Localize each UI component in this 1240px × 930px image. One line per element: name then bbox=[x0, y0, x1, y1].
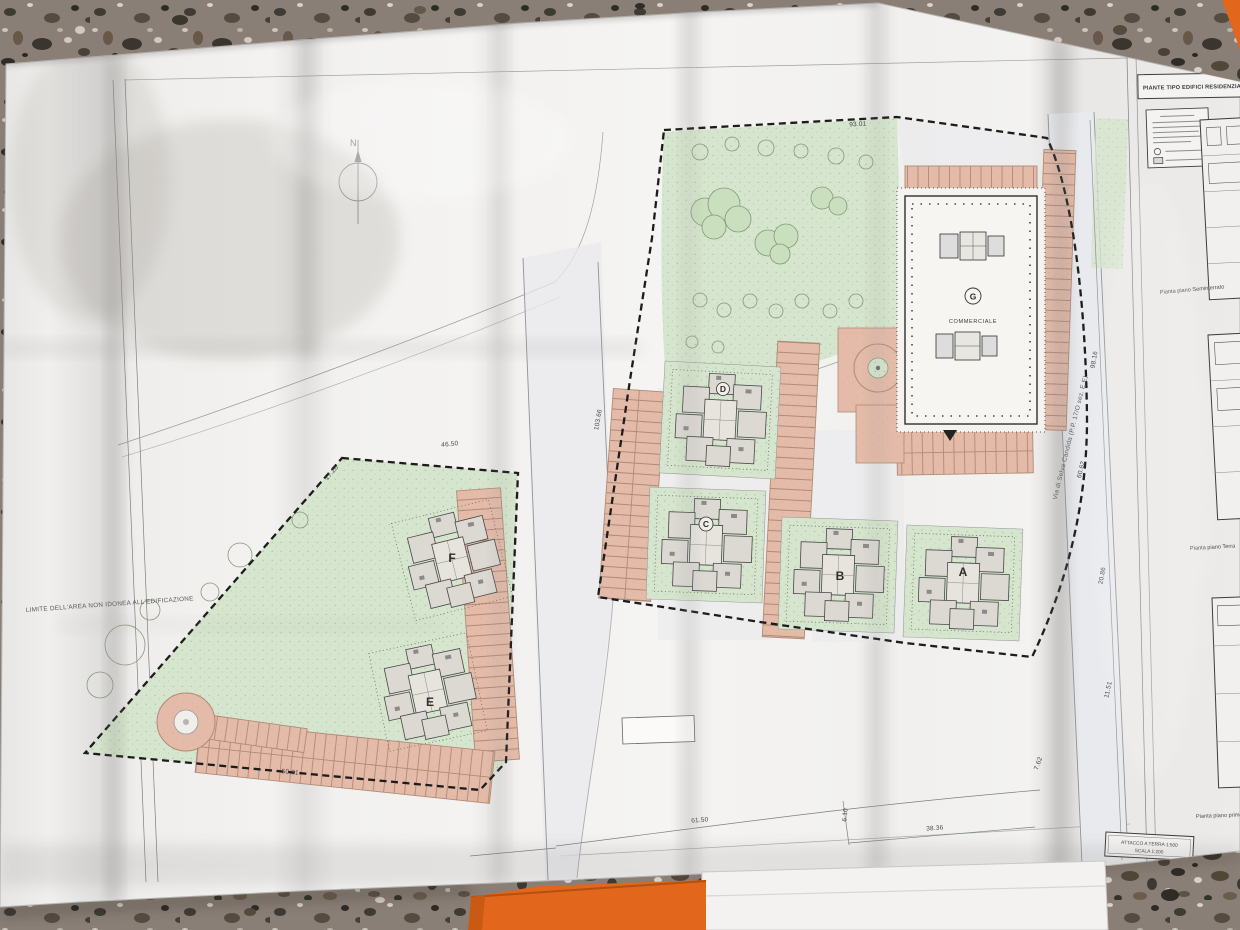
building-d-label: D bbox=[720, 384, 726, 394]
commercial-core-north bbox=[940, 232, 1004, 260]
building-c-label: C bbox=[703, 519, 709, 529]
building-f-label: F bbox=[448, 551, 455, 565]
building-b-label: B bbox=[836, 569, 845, 583]
building-g-label: G bbox=[970, 292, 977, 302]
commercial-building: G COMMERCIALE bbox=[897, 188, 1045, 441]
commercial-label: COMMERCIALE bbox=[949, 319, 997, 325]
building-a: A bbox=[903, 525, 1023, 641]
dim-bottom-right: 38.36 bbox=[926, 824, 944, 832]
commercial-core-south bbox=[936, 332, 997, 360]
photo-of-site-plan: F E 46.50 17.26 50.31 bbox=[0, 0, 1240, 930]
building-a-label: A bbox=[959, 565, 968, 579]
building-c: C bbox=[646, 487, 766, 603]
legend-symbol-square bbox=[1154, 157, 1163, 163]
dim-top: 93.01 bbox=[849, 121, 867, 129]
white-sheet-right bbox=[700, 861, 1108, 930]
building-e-label: E bbox=[426, 695, 434, 709]
dim-bottom-small: 6.10 bbox=[841, 808, 849, 822]
building-d: D bbox=[659, 361, 781, 479]
parking-strip-commercial-south bbox=[897, 429, 1034, 475]
legend-box bbox=[1146, 108, 1210, 168]
